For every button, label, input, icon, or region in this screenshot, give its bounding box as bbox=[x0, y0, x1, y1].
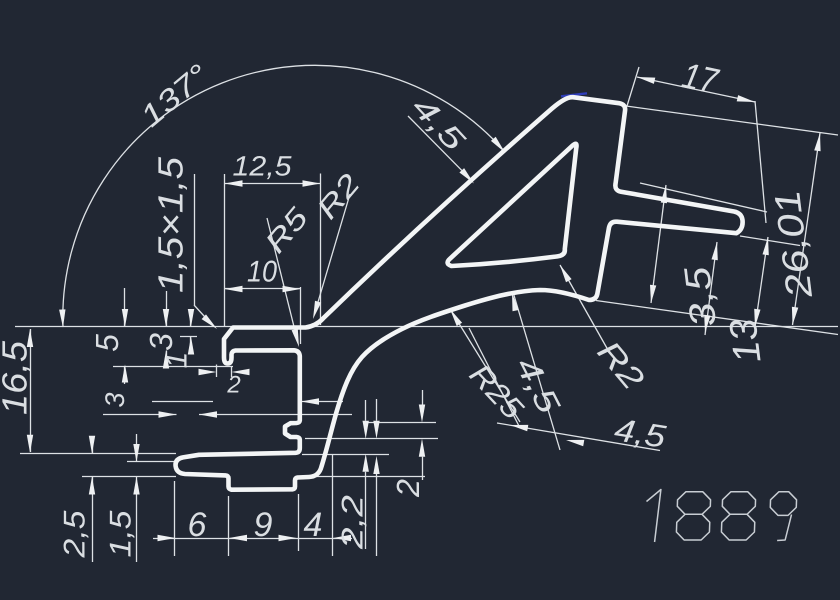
svg-text:12,5: 12,5 bbox=[233, 151, 292, 182]
svg-text:3: 3 bbox=[100, 392, 130, 407]
svg-text:1,5×1,5: 1,5×1,5 bbox=[152, 156, 191, 293]
svg-text:1: 1 bbox=[161, 352, 194, 369]
svg-text:4: 4 bbox=[304, 506, 323, 544]
svg-text:2: 2 bbox=[226, 372, 240, 399]
svg-text:3: 3 bbox=[143, 333, 179, 351]
svg-text:2,2: 2,2 bbox=[337, 495, 370, 551]
svg-text:10: 10 bbox=[247, 256, 277, 289]
svg-text:6: 6 bbox=[188, 506, 207, 544]
svg-text:16,5: 16,5 bbox=[0, 340, 35, 415]
svg-text:2: 2 bbox=[390, 479, 426, 498]
svg-text:13: 13 bbox=[722, 317, 769, 366]
svg-text:1,5: 1,5 bbox=[105, 510, 138, 557]
svg-text:9: 9 bbox=[254, 506, 273, 544]
svg-text:5: 5 bbox=[89, 334, 125, 352]
svg-text:3,5: 3,5 bbox=[676, 264, 724, 330]
svg-text:2,5: 2,5 bbox=[59, 510, 92, 558]
